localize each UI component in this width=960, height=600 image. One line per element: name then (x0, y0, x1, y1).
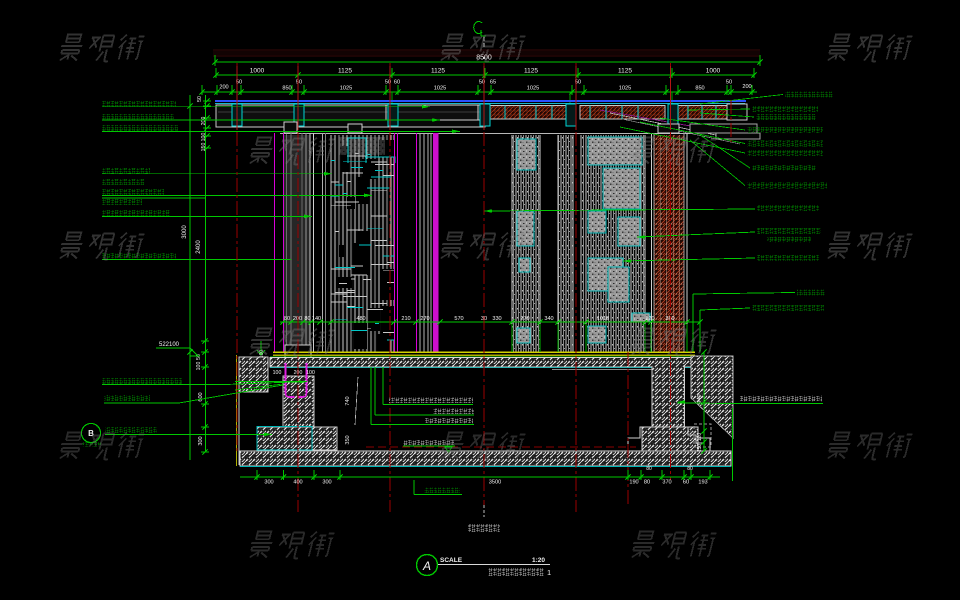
svg-text:522100: 522100 (159, 342, 180, 348)
svg-text:100: 100 (273, 370, 282, 376)
svg-text:300: 300 (264, 480, 273, 486)
svg-text:1125: 1125 (338, 68, 352, 75)
svg-text:100: 100 (306, 370, 315, 376)
svg-text:850: 850 (282, 86, 291, 92)
svg-text:80: 80 (644, 480, 650, 486)
svg-text:200: 200 (742, 84, 751, 90)
svg-text:210: 210 (401, 316, 410, 322)
svg-text:60: 60 (394, 80, 400, 86)
svg-text:1125: 1125 (524, 68, 538, 75)
svg-text:120: 120 (645, 316, 654, 322)
svg-text:3500: 3500 (489, 480, 501, 486)
svg-text:140: 140 (312, 316, 321, 322)
svg-text:1:20: 1:20 (532, 557, 545, 564)
svg-text:150: 150 (201, 143, 207, 152)
svg-text:100: 100 (201, 133, 207, 142)
svg-text:600: 600 (198, 392, 204, 401)
svg-text:570: 570 (454, 316, 463, 322)
svg-text:1125: 1125 (618, 68, 632, 75)
svg-text:370: 370 (662, 480, 671, 486)
svg-text:340: 340 (544, 316, 553, 322)
svg-text:270: 270 (520, 316, 529, 322)
svg-text:2400: 2400 (196, 240, 202, 254)
svg-text:480: 480 (356, 316, 365, 322)
svg-text:330: 330 (492, 316, 501, 322)
svg-text:1000: 1000 (250, 68, 265, 75)
svg-text:3000: 3000 (182, 225, 188, 239)
svg-text:1010: 1010 (597, 316, 609, 322)
svg-text:300: 300 (198, 436, 204, 445)
svg-text:1000: 1000 (706, 68, 721, 75)
svg-text:193: 193 (698, 480, 707, 486)
svg-text:270: 270 (420, 316, 429, 322)
svg-text:1025: 1025 (340, 86, 352, 92)
svg-text:1025: 1025 (527, 86, 539, 92)
svg-text:120: 120 (697, 433, 703, 442)
svg-text:1125: 1125 (431, 68, 445, 75)
svg-text:80: 80 (284, 316, 290, 322)
svg-text:50: 50 (726, 80, 732, 86)
svg-text:65: 65 (490, 80, 496, 86)
svg-text:200: 200 (219, 85, 228, 91)
svg-text:150: 150 (697, 444, 703, 453)
svg-text:SCALE: SCALE (440, 557, 463, 564)
svg-text:1: 1 (547, 568, 551, 577)
svg-text:400: 400 (293, 480, 302, 486)
svg-text:1025: 1025 (434, 86, 446, 92)
svg-text:190: 190 (629, 480, 638, 486)
svg-text:200: 200 (201, 117, 207, 126)
svg-text:A: A (422, 559, 431, 573)
svg-text:850: 850 (695, 86, 704, 92)
svg-text:80: 80 (687, 466, 693, 472)
svg-text:60: 60 (683, 480, 689, 486)
svg-text:80: 80 (304, 316, 310, 322)
svg-text:80: 80 (646, 466, 652, 472)
svg-text:1025: 1025 (619, 86, 631, 92)
svg-text:300: 300 (322, 480, 331, 486)
svg-text:50: 50 (296, 80, 302, 86)
svg-text:50: 50 (197, 96, 203, 102)
svg-text:100: 100 (196, 362, 202, 371)
svg-text:940: 940 (697, 394, 703, 403)
svg-text:740: 740 (345, 396, 351, 405)
svg-text:350: 350 (345, 435, 351, 444)
